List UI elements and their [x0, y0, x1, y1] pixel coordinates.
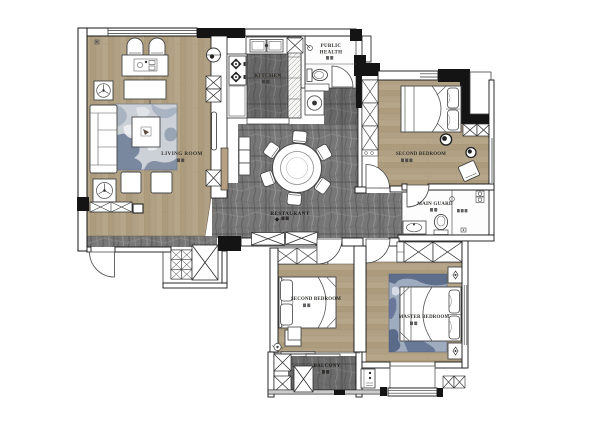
svg-text:HEALTH: HEALTH — [320, 51, 343, 56]
svg-text:SECOND BEDROOM: SECOND BEDROOM — [396, 152, 446, 157]
svg-text:PUBLIC: PUBLIC — [321, 44, 342, 49]
svg-text:MASTER BEDROOM: MASTER BEDROOM — [399, 315, 450, 320]
svg-text:BALCONY: BALCONY — [313, 364, 340, 369]
svg-text:LIVING ROOM: LIVING ROOM — [161, 151, 202, 157]
svg-text:MAIN GUARD: MAIN GUARD — [417, 202, 453, 207]
svg-text:RESTAURANT: RESTAURANT — [270, 211, 309, 217]
svg-text:KITCHEN: KITCHEN — [254, 73, 281, 79]
svg-text:SECOND BEDROOM: SECOND BEDROOM — [291, 297, 341, 302]
